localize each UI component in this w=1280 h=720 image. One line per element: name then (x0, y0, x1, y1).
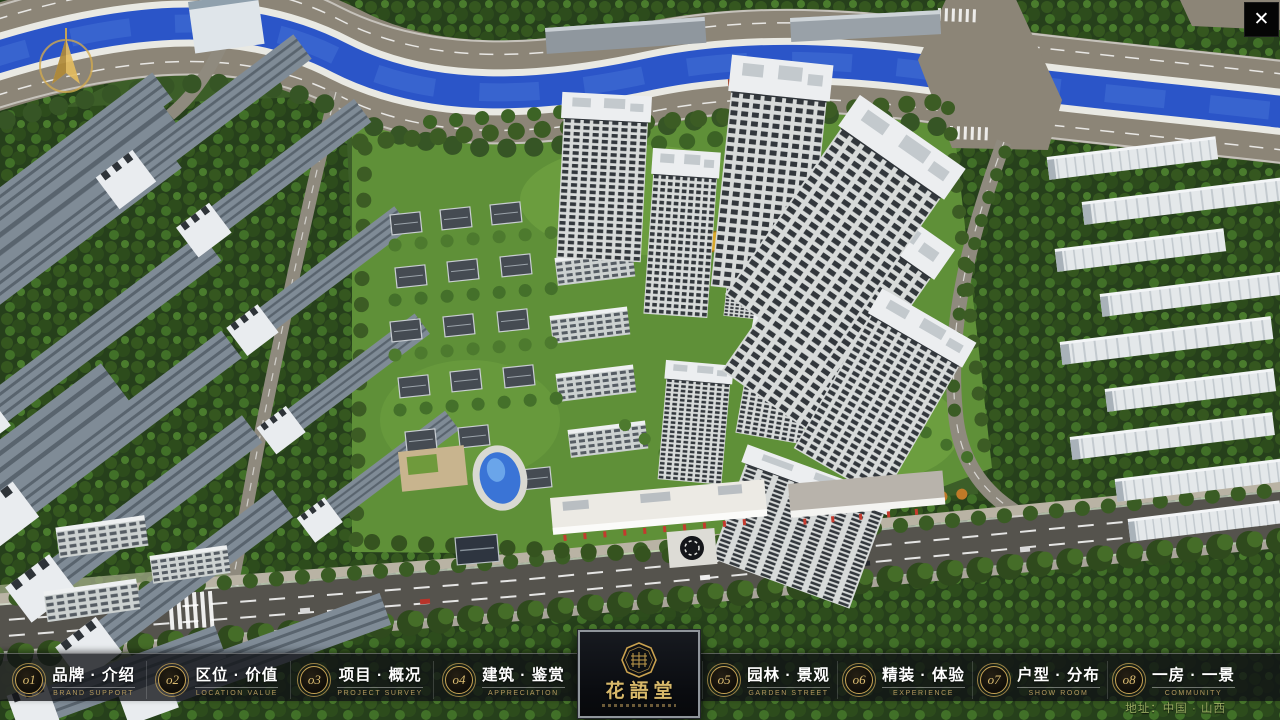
nav-label-zh: 项目 · 概况 (339, 663, 422, 685)
nav-item-room-view[interactable]: o8 一房 · 一景 COMMUNITY (1107, 661, 1242, 699)
logo-seal-icon (620, 641, 658, 679)
project-address: 地址：中国 · 山西 (1125, 700, 1226, 716)
nav-label-en: SHOW ROOM (1017, 687, 1100, 697)
nav-label-zh: 建筑 · 鉴赏 (482, 663, 565, 685)
nav-label-en: GARDEN STREET (747, 687, 830, 697)
nav-label-zh: 户型 · 分布 (1017, 663, 1100, 685)
masterplan-canvas[interactable] (0, 0, 1280, 720)
project-name: 花語堂 (600, 682, 677, 701)
nav-label-en: LOCATION VALUE (195, 687, 278, 697)
presentation-window: ✕ o1 品牌 · 介绍 BRAND SUPPORT o2 区位 · 价值 LO… (0, 0, 1280, 720)
nav-item-project-survey[interactable]: o3 项目 · 概况 PROJECT SURVEY (290, 661, 433, 699)
nav-label-zh: 园林 · 景观 (747, 663, 830, 685)
nav-label-en: EXPERIENCE (882, 687, 965, 697)
nav-number-badge: o8 (1115, 666, 1143, 694)
logo-subtext-line (602, 704, 676, 707)
nav-number-badge: o4 (445, 666, 473, 694)
nav-item-unit-layout[interactable]: o7 户型 · 分布 SHOW ROOM (972, 661, 1107, 699)
nav-group-left: o1 品牌 · 介绍 BRAND SUPPORT o2 区位 · 价值 LOCA… (4, 654, 576, 701)
nav-item-decor-experience[interactable]: o6 精装 · 体验 EXPERIENCE (837, 661, 972, 699)
nav-label-zh: 精装 · 体验 (882, 663, 965, 685)
nav-number-badge: o5 (710, 666, 738, 694)
nav-label-zh: 一房 · 一景 (1152, 663, 1235, 685)
nav-label-en: COMMUNITY (1152, 687, 1235, 697)
nav-group-right: o5 园林 · 景观 GARDEN STREET o6 精装 · 体验 EXPE… (702, 654, 1242, 701)
nav-number-badge: o3 (300, 666, 328, 694)
nav-number-badge: o7 (980, 666, 1008, 694)
nav-item-garden-landscape[interactable]: o5 园林 · 景观 GARDEN STREET (702, 661, 837, 699)
nav-number-badge: o6 (845, 666, 873, 694)
nav-label-en: PROJECT SURVEY (337, 687, 423, 697)
nav-item-architecture[interactable]: o4 建筑 · 鉴赏 APPRECIATION (433, 661, 576, 699)
nav-label-zh: 品牌 · 介绍 (52, 663, 135, 685)
nav-number-badge: o1 (15, 666, 43, 694)
masterplan-render (0, 0, 1280, 720)
nav-label-zh: 区位 · 价值 (195, 663, 278, 685)
nav-number-badge: o2 (158, 666, 186, 694)
nav-item-location-value[interactable]: o2 区位 · 价值 LOCATION VALUE (146, 661, 289, 699)
nav-label-en: APPRECIATION (482, 687, 565, 697)
compass-north-icon (36, 26, 98, 100)
nav-label-en: BRAND SUPPORT (52, 687, 135, 697)
project-logo-panel[interactable]: 花語堂 (578, 630, 700, 718)
nav-item-brand-intro[interactable]: o1 品牌 · 介绍 BRAND SUPPORT (4, 661, 146, 699)
close-button[interactable]: ✕ (1244, 2, 1279, 37)
